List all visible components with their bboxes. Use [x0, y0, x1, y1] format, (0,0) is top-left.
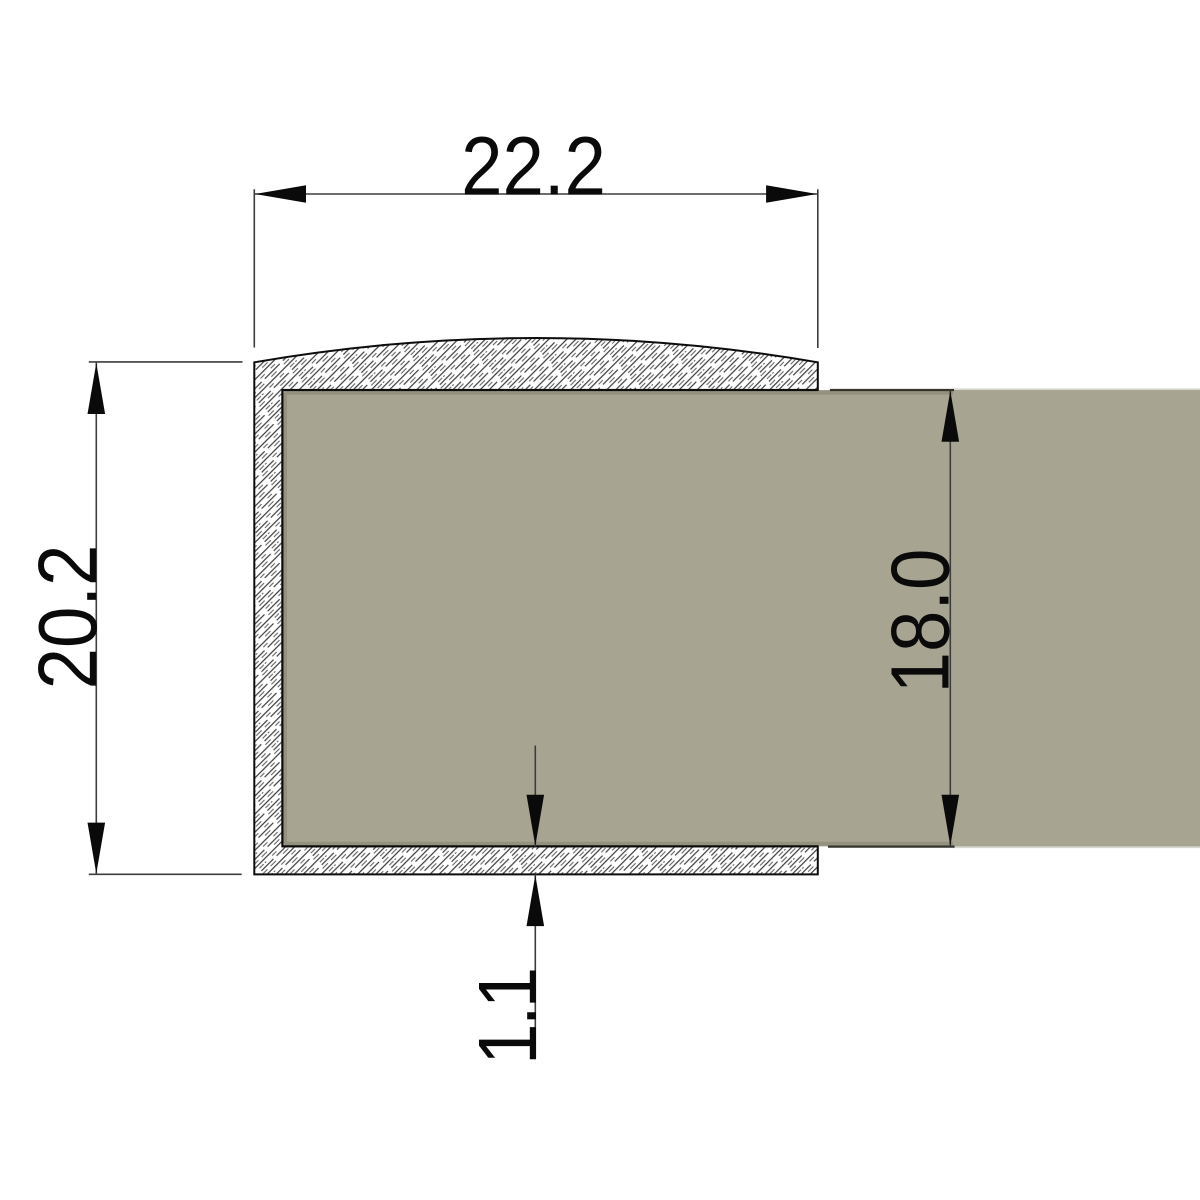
svg-text:20.2: 20.2	[21, 545, 114, 690]
svg-text:1.1: 1.1	[462, 970, 555, 1065]
svg-text:22.2: 22.2	[461, 120, 606, 213]
svg-text:18.0: 18.0	[874, 549, 967, 694]
